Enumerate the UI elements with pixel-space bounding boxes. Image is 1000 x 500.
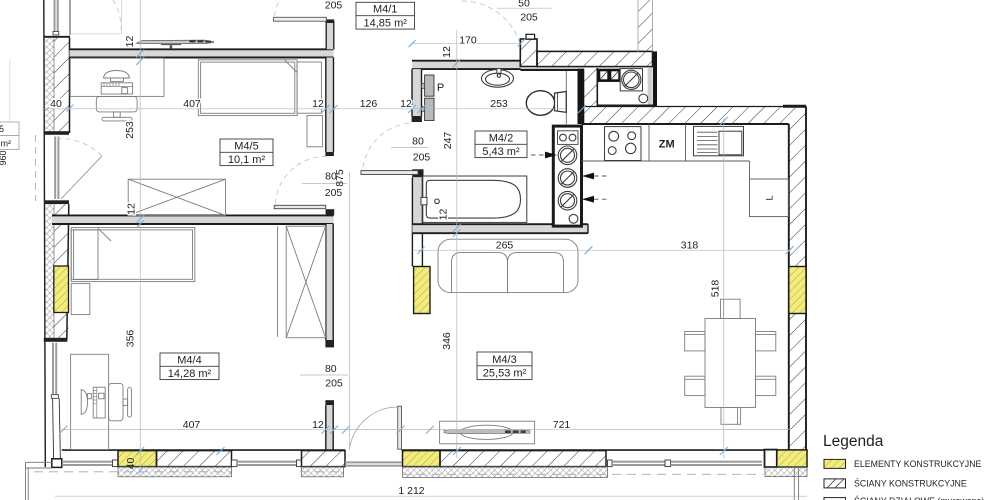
- svg-text:1 212: 1 212: [398, 485, 424, 497]
- svg-text:P: P: [437, 82, 444, 94]
- svg-text:ZM: ZM: [659, 138, 675, 150]
- svg-text:5,43 m²: 5,43 m²: [482, 146, 520, 158]
- svg-text:Legenda: Legenda: [823, 433, 884, 450]
- svg-text:407: 407: [183, 419, 201, 431]
- svg-text:875: 875: [334, 169, 346, 187]
- svg-text:12: 12: [441, 46, 453, 58]
- svg-text:346: 346: [441, 332, 453, 350]
- svg-text:14,28 m²: 14,28 m²: [168, 368, 212, 380]
- svg-text:M4/4: M4/4: [177, 354, 201, 366]
- svg-text:205: 205: [325, 0, 343, 11]
- svg-text:12: 12: [124, 36, 136, 48]
- svg-text:10,1 m²: 10,1 m²: [228, 154, 266, 166]
- svg-text:80: 80: [325, 363, 337, 375]
- svg-text:m²: m²: [1, 139, 12, 149]
- svg-text:518: 518: [710, 280, 722, 298]
- svg-text:12: 12: [438, 209, 450, 221]
- svg-text:205: 205: [325, 377, 343, 389]
- svg-text:205: 205: [325, 187, 343, 199]
- svg-text:M4/2: M4/2: [489, 132, 513, 144]
- svg-text:80: 80: [412, 136, 424, 148]
- svg-text:265: 265: [496, 240, 514, 252]
- svg-text:356: 356: [125, 330, 137, 348]
- svg-text:126: 126: [360, 98, 378, 110]
- svg-text:25,53 m²: 25,53 m²: [483, 368, 527, 380]
- svg-text:407: 407: [183, 98, 201, 110]
- svg-text:253: 253: [124, 121, 136, 139]
- svg-text:205: 205: [520, 12, 538, 24]
- svg-text:M4/1: M4/1: [373, 4, 397, 16]
- svg-text:40: 40: [125, 458, 137, 470]
- svg-text:253: 253: [490, 98, 508, 110]
- svg-text:12: 12: [400, 98, 412, 110]
- svg-text:960: 960: [0, 150, 8, 165]
- svg-text:L: L: [765, 195, 775, 200]
- svg-text:12: 12: [126, 203, 138, 215]
- svg-text:318: 318: [681, 240, 699, 252]
- svg-text:12: 12: [312, 98, 324, 110]
- svg-text:14,85 m²: 14,85 m²: [363, 17, 407, 29]
- svg-text:170: 170: [459, 35, 477, 47]
- svg-text:721: 721: [553, 419, 571, 431]
- svg-text:M4/5: M4/5: [234, 140, 258, 152]
- svg-text:ŚCIANY DZIAŁOWE (murowane): ŚCIANY DZIAŁOWE (murowane): [854, 495, 984, 500]
- svg-text:205: 205: [413, 151, 431, 163]
- svg-text:40: 40: [50, 98, 62, 110]
- svg-text:ŚCIANY KONSTRUKCYJNE: ŚCIANY KONSTRUKCYJNE: [854, 477, 967, 488]
- svg-text:5: 5: [0, 124, 4, 134]
- svg-text:12: 12: [312, 419, 324, 431]
- svg-text:ELEMENTY KONSTRUKCYJNE: ELEMENTY KONSTRUKCYJNE: [854, 459, 982, 469]
- svg-text:50: 50: [518, 0, 530, 10]
- svg-text:247: 247: [442, 132, 454, 150]
- svg-text:M4/3: M4/3: [492, 354, 516, 366]
